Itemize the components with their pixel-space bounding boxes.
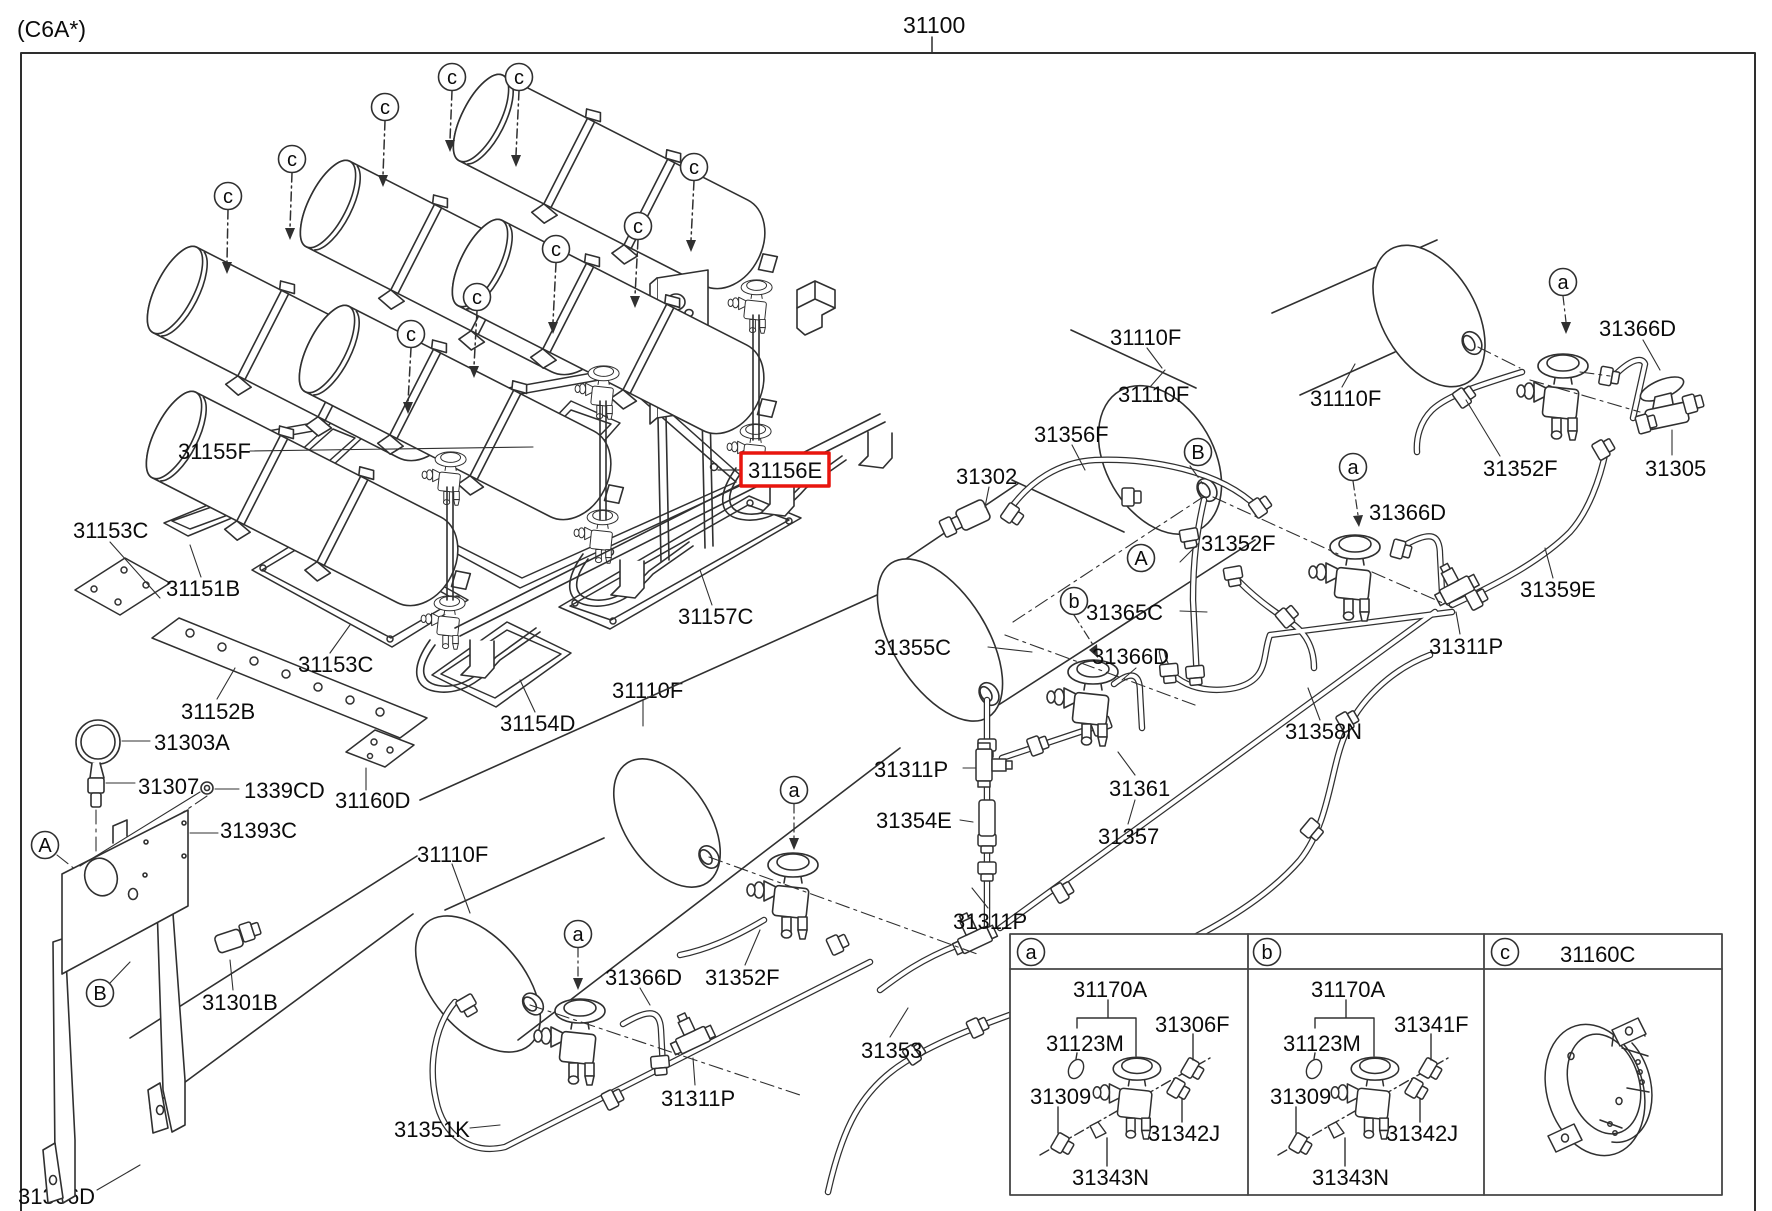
- svg-text:31170A: 31170A: [1311, 977, 1386, 1002]
- svg-text:31354E: 31354E: [876, 808, 952, 833]
- svg-text:c: c: [287, 149, 297, 171]
- svg-text:31358N: 31358N: [1285, 719, 1362, 744]
- svg-text:c: c: [689, 157, 699, 179]
- svg-text:31152B: 31152B: [181, 699, 255, 724]
- svg-text:31303A: 31303A: [154, 730, 230, 755]
- svg-text:31361: 31361: [1109, 776, 1170, 801]
- svg-text:31306F: 31306F: [1155, 1012, 1230, 1037]
- svg-text:31110F: 31110F: [417, 842, 488, 867]
- svg-text:c: c: [514, 67, 524, 89]
- svg-text:1339CD: 1339CD: [244, 778, 325, 803]
- svg-text:c: c: [1500, 942, 1510, 964]
- svg-text:31160C: 31160C: [1560, 942, 1636, 967]
- svg-text:A: A: [38, 835, 52, 857]
- svg-text:31311P: 31311P: [953, 909, 1027, 934]
- svg-text:31110F: 31110F: [1310, 386, 1381, 411]
- svg-text:31352F: 31352F: [1483, 456, 1558, 481]
- svg-text:31110F: 31110F: [1118, 382, 1189, 407]
- svg-text:31157C: 31157C: [678, 604, 754, 629]
- svg-text:31356F: 31356F: [1034, 422, 1109, 447]
- svg-text:31302: 31302: [956, 464, 1017, 489]
- svg-text:B: B: [93, 983, 106, 1005]
- svg-text:b: b: [1068, 591, 1079, 613]
- svg-text:31160D: 31160D: [335, 788, 410, 813]
- svg-text:31341F: 31341F: [1394, 1012, 1469, 1037]
- svg-text:31343N: 31343N: [1072, 1165, 1149, 1190]
- svg-text:31311P: 31311P: [874, 757, 948, 782]
- svg-text:c: c: [223, 186, 233, 208]
- svg-text:31352F: 31352F: [705, 965, 780, 990]
- svg-text:31156E: 31156E: [748, 458, 822, 483]
- svg-text:31309: 31309: [1030, 1084, 1091, 1109]
- svg-text:31309: 31309: [1270, 1084, 1331, 1109]
- svg-text:c: c: [447, 67, 457, 89]
- svg-text:c: c: [406, 324, 416, 346]
- svg-text:31151B: 31151B: [166, 576, 240, 601]
- svg-text:31357: 31357: [1098, 824, 1159, 849]
- svg-text:31366D: 31366D: [1092, 644, 1169, 669]
- svg-text:31305: 31305: [1645, 456, 1706, 481]
- svg-text:31170A: 31170A: [1073, 977, 1148, 1002]
- svg-text:31355C: 31355C: [874, 635, 951, 660]
- svg-text:31366D: 31366D: [605, 965, 682, 990]
- svg-text:(C6A*): (C6A*): [17, 16, 86, 42]
- svg-text:31153C: 31153C: [73, 518, 149, 543]
- svg-text:31342J: 31342J: [1386, 1121, 1458, 1146]
- svg-text:31342J: 31342J: [1148, 1121, 1220, 1146]
- svg-text:c: c: [472, 287, 482, 309]
- svg-text:31123M: 31123M: [1046, 1031, 1124, 1056]
- svg-text:31366D: 31366D: [1599, 316, 1676, 341]
- svg-text:c: c: [551, 239, 561, 261]
- svg-text:31110F: 31110F: [612, 678, 683, 703]
- svg-text:a: a: [1025, 942, 1037, 964]
- svg-text:31154D: 31154D: [500, 711, 575, 736]
- svg-text:31311P: 31311P: [1429, 634, 1503, 659]
- svg-text:31366D: 31366D: [1369, 500, 1446, 525]
- svg-text:b: b: [1261, 942, 1272, 964]
- svg-text:31301B: 31301B: [202, 990, 278, 1015]
- svg-text:a: a: [1347, 457, 1359, 479]
- svg-text:31100: 31100: [903, 12, 965, 38]
- svg-text:31311P: 31311P: [661, 1086, 735, 1111]
- svg-text:31365C: 31365C: [1086, 600, 1163, 625]
- svg-text:31153C: 31153C: [298, 652, 374, 677]
- svg-text:A: A: [1134, 548, 1148, 570]
- svg-text:31359E: 31359E: [1520, 577, 1596, 602]
- svg-text:31353: 31353: [861, 1038, 922, 1063]
- svg-text:31123M: 31123M: [1283, 1031, 1361, 1056]
- svg-text:a: a: [572, 924, 584, 946]
- svg-text:31155F: 31155F: [178, 439, 251, 464]
- svg-text:31343N: 31343N: [1312, 1165, 1389, 1190]
- svg-text:B: B: [1191, 442, 1204, 464]
- svg-text:a: a: [788, 780, 800, 802]
- svg-text:31307: 31307: [138, 774, 199, 799]
- svg-text:31393C: 31393C: [220, 818, 297, 843]
- svg-text:31351K: 31351K: [394, 1117, 470, 1142]
- svg-text:31352F: 31352F: [1201, 531, 1276, 556]
- svg-text:c: c: [633, 216, 643, 238]
- svg-text:31110F: 31110F: [1110, 325, 1181, 350]
- svg-text:c: c: [380, 97, 390, 119]
- svg-text:a: a: [1557, 272, 1569, 294]
